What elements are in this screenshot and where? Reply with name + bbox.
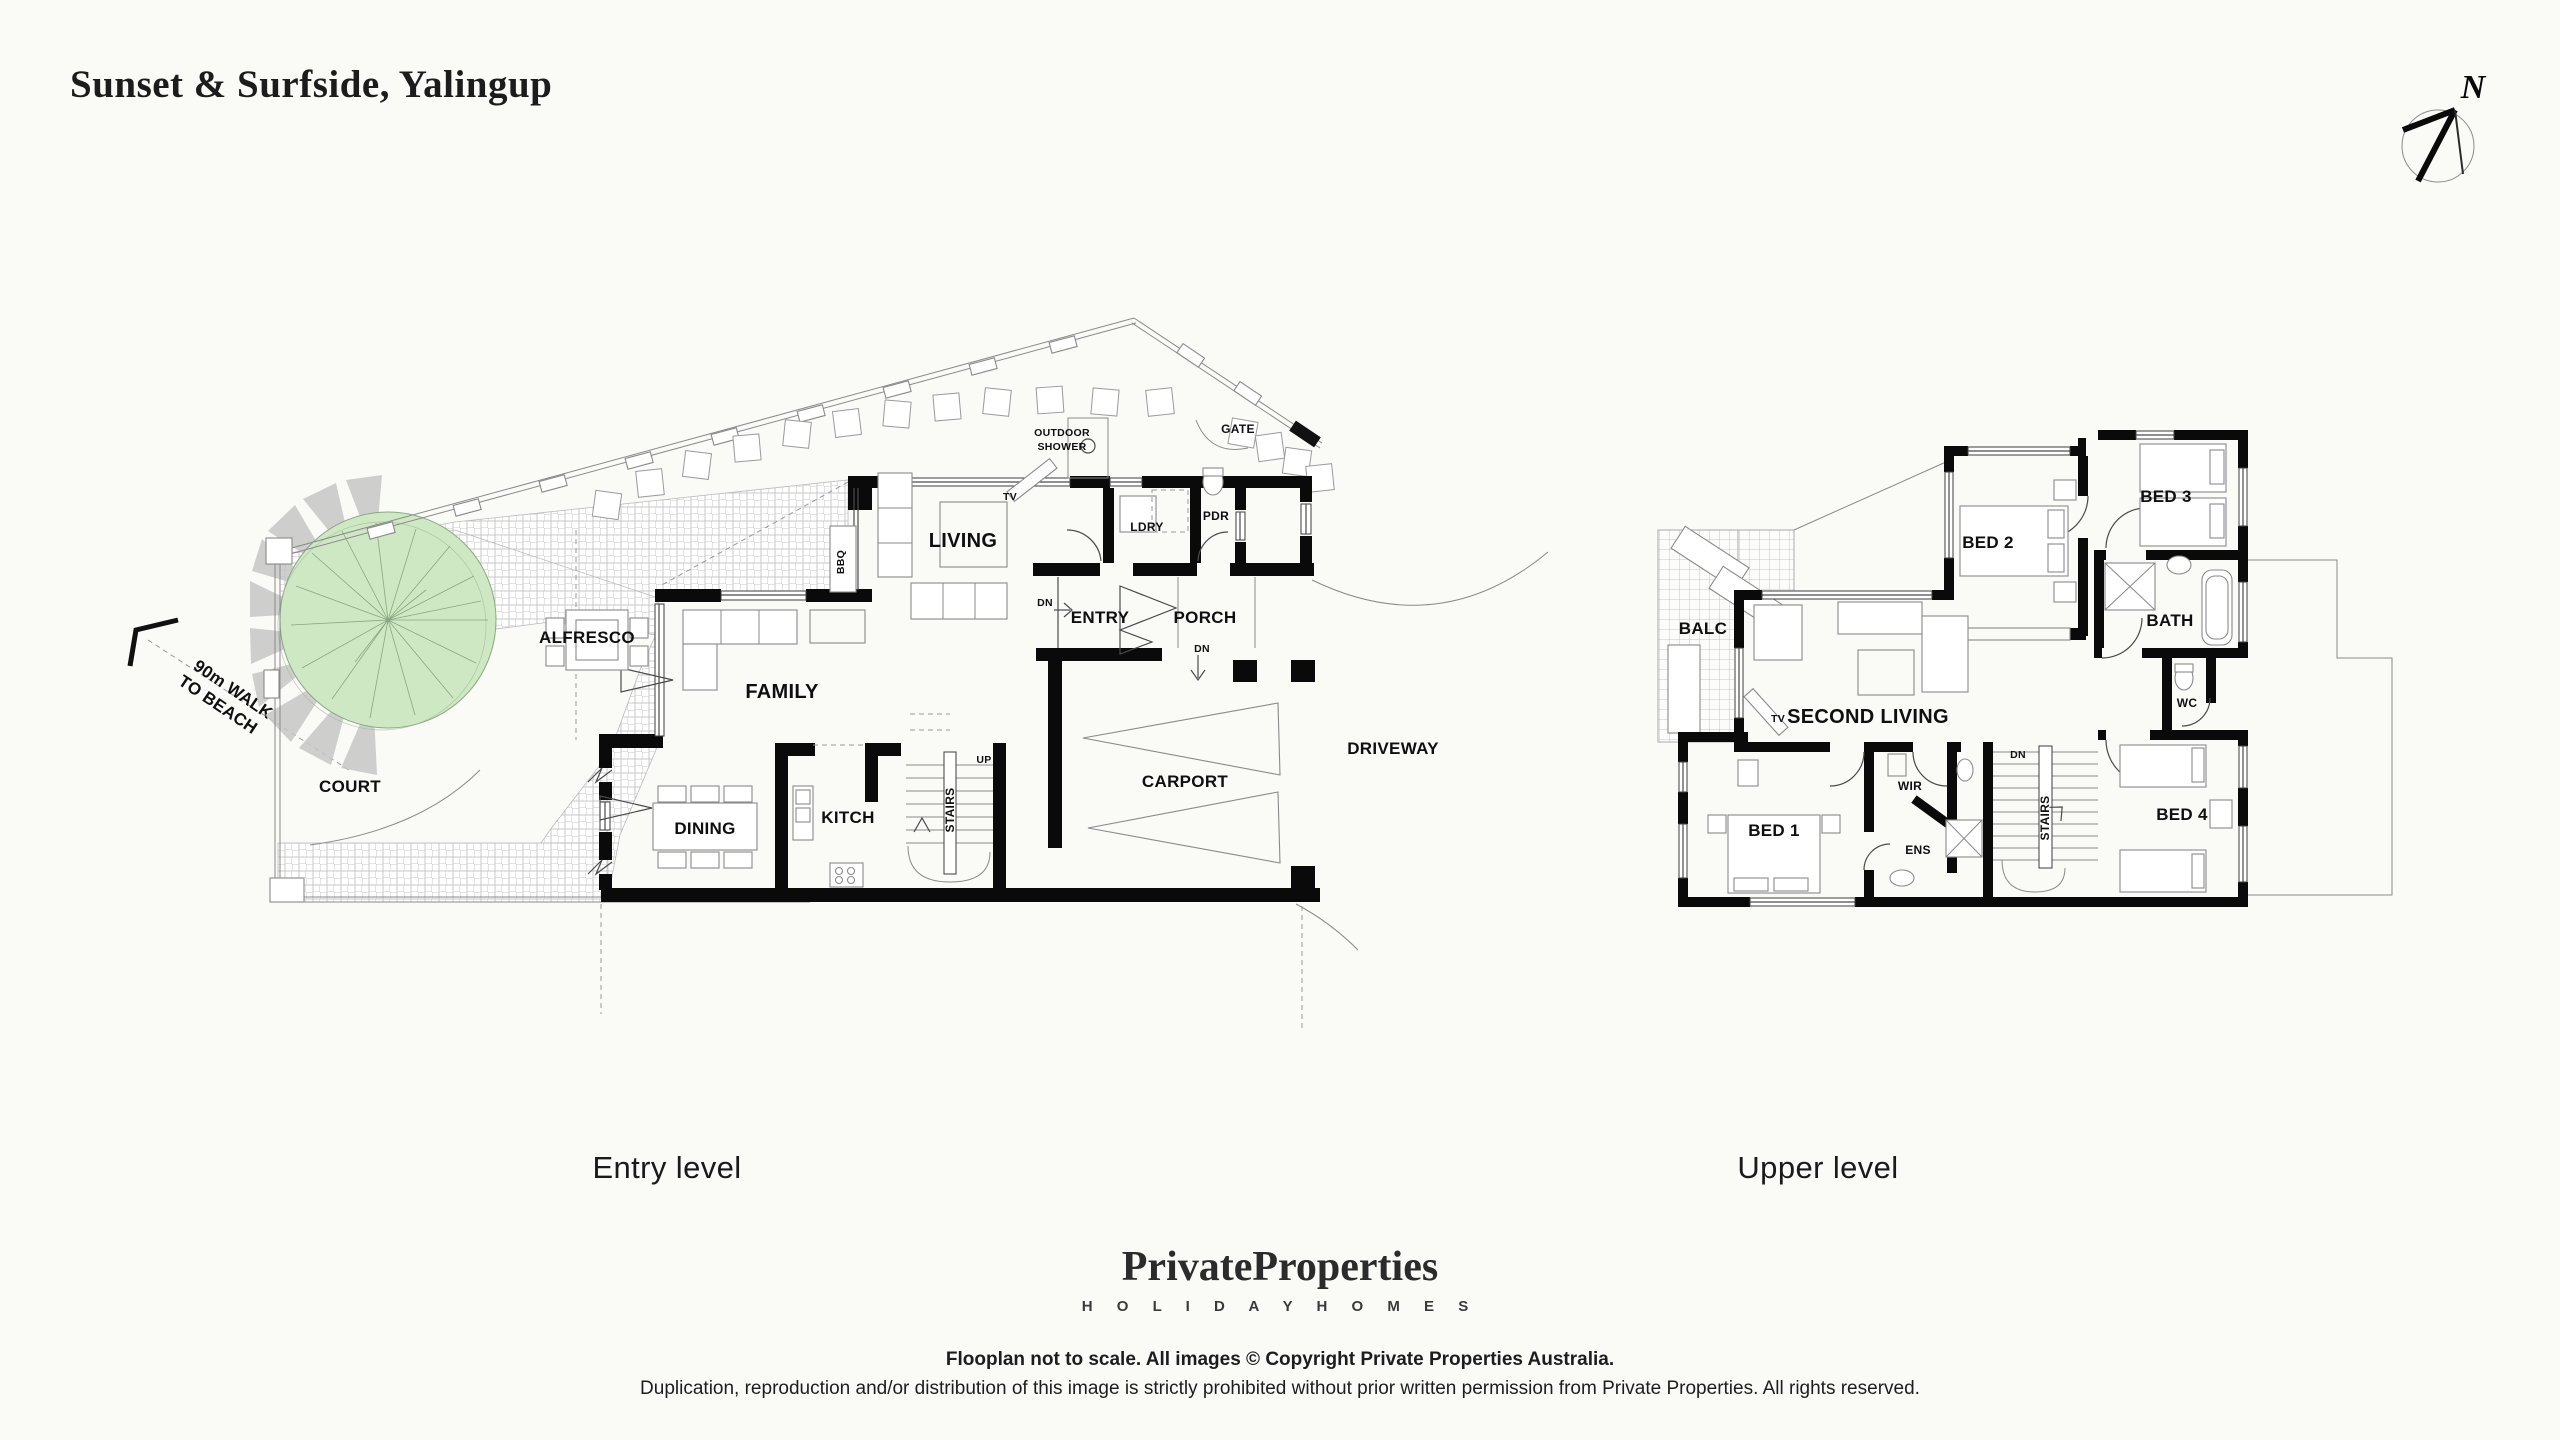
upper-stairs-label: STAIRS	[2038, 796, 2052, 841]
north-compass-icon: N	[2395, 48, 2515, 198]
room-label-second-living: SECOND LIVING	[1787, 706, 1949, 728]
outdoor-shower-label-1: OUTDOOR	[1034, 427, 1090, 439]
room-label-kitchen: KITCH	[821, 808, 874, 827]
entry-dn-label: DN	[1037, 597, 1053, 609]
room-label-bed4: BED 4	[2156, 805, 2208, 824]
room-label-powder: PDR	[1203, 509, 1229, 523]
roof-outline	[2248, 560, 2392, 895]
upper-level-plan: STAIRS DN BALC BED 2 BED 3 BATH WC SECON…	[1650, 430, 2450, 930]
entry-stairs: STAIRS UP	[906, 714, 993, 882]
bed2-robe	[1954, 628, 2070, 640]
page-title: Sunset & Surfside, Yalingup	[70, 62, 552, 107]
entry-up-label: UP	[976, 754, 991, 766]
gate-label: GATE	[1221, 422, 1255, 436]
entry-stairs-label: STAIRS	[943, 788, 957, 833]
brand-tagline: H O L I D A Y H O M E S	[0, 1298, 2560, 1315]
room-label-family: FAMILY	[745, 681, 819, 703]
room-label-driveway: DRIVEWAY	[1347, 739, 1439, 758]
room-label-wc: WC	[2177, 696, 2198, 710]
room-label-alfresco: ALFRESCO	[539, 628, 635, 647]
room-label-entry: ENTRY	[1071, 608, 1130, 627]
room-label-wir: WIR	[1898, 779, 1922, 793]
upper-tv-label: TV	[1771, 713, 1785, 725]
room-label-laundry: LDRY	[1130, 520, 1163, 534]
upper-level-caption: Upper level	[1737, 1150, 1898, 1186]
copyright-note-line1: Flooplan not to scale. All images © Copy…	[0, 1349, 2560, 1371]
upper-stairs: STAIRS DN	[1993, 746, 2098, 892]
room-label-bed1: BED 1	[1748, 821, 1800, 840]
room-label-porch: PORCH	[1174, 608, 1237, 627]
entry-tv-label: TV	[1003, 491, 1017, 503]
room-label-living: LIVING	[929, 530, 997, 552]
room-label-bath: BATH	[2146, 611, 2193, 630]
room-label-carport: CARPORT	[1142, 772, 1228, 791]
room-label-bed3: BED 3	[2140, 487, 2192, 506]
roof-diagonal-line	[1794, 462, 1946, 530]
copyright-note-line2: Duplication, reproduction and/or distrib…	[0, 1378, 2560, 1400]
bbq-label: BBQ	[835, 550, 847, 574]
room-label-dining: DINING	[674, 819, 735, 838]
room-label-court: COURT	[319, 777, 381, 796]
room-label-bed2: BED 2	[1962, 533, 2014, 552]
brand-logo: PrivateProperties	[0, 1246, 2560, 1288]
upper-dn-label: DN	[2010, 749, 2026, 761]
room-label-balcony: BALC	[1679, 619, 1727, 638]
beach-arrow-icon	[130, 620, 178, 666]
entry-level-plan: 90m WALK TO BEACH	[80, 290, 1550, 1030]
footer: PrivateProperties H O L I D A Y H O M E …	[0, 1246, 2560, 1400]
porch-dn-label: DN	[1194, 643, 1210, 655]
entry-level-caption: Entry level	[592, 1150, 741, 1186]
room-label-ensuite: ENS	[1905, 843, 1931, 857]
outdoor-shower-label-2: SHOWER	[1037, 441, 1086, 453]
compass-north-label: N	[2460, 69, 2487, 106]
